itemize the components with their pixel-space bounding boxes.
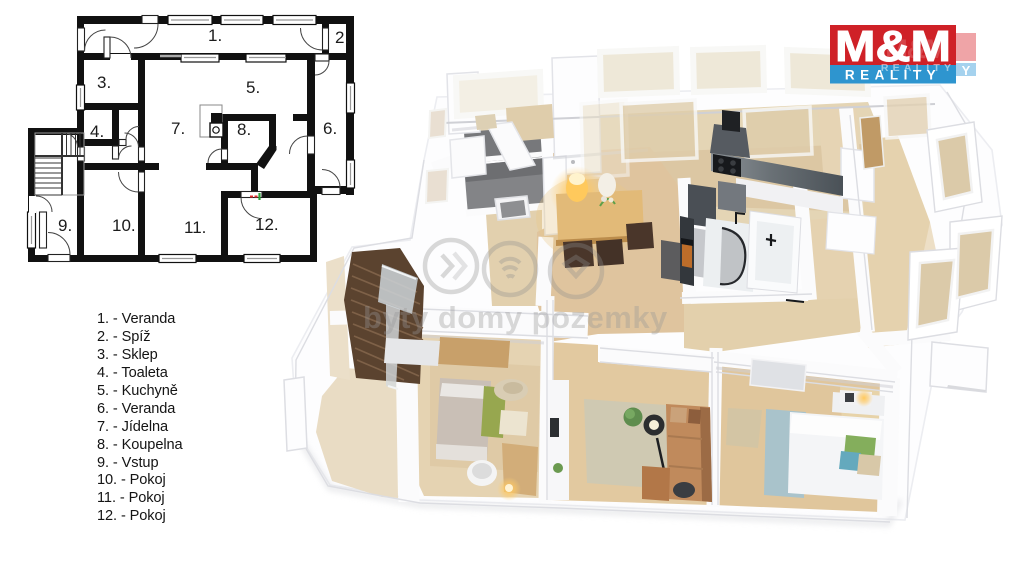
svg-text:11.: 11. — [184, 218, 206, 237]
svg-text:byty domy pozemky: byty domy pozemky — [363, 300, 668, 335]
svg-text:9.: 9. — [58, 216, 72, 235]
svg-text:8.: 8. — [237, 120, 251, 139]
svg-text:7.: 7. — [171, 119, 185, 138]
svg-text:6.: 6. — [323, 119, 337, 138]
svg-text:1.: 1. — [208, 26, 222, 45]
svg-text:5.: 5. — [246, 78, 260, 97]
svg-text:Y: Y — [962, 63, 971, 78]
svg-text:M&M: M&M — [885, 34, 946, 64]
svg-text:4.: 4. — [90, 122, 104, 141]
svg-text:3.: 3. — [97, 73, 111, 92]
svg-text:12.: 12. — [255, 215, 279, 234]
svg-text:10.: 10. — [112, 216, 136, 235]
svg-text:2.: 2. — [335, 28, 349, 47]
